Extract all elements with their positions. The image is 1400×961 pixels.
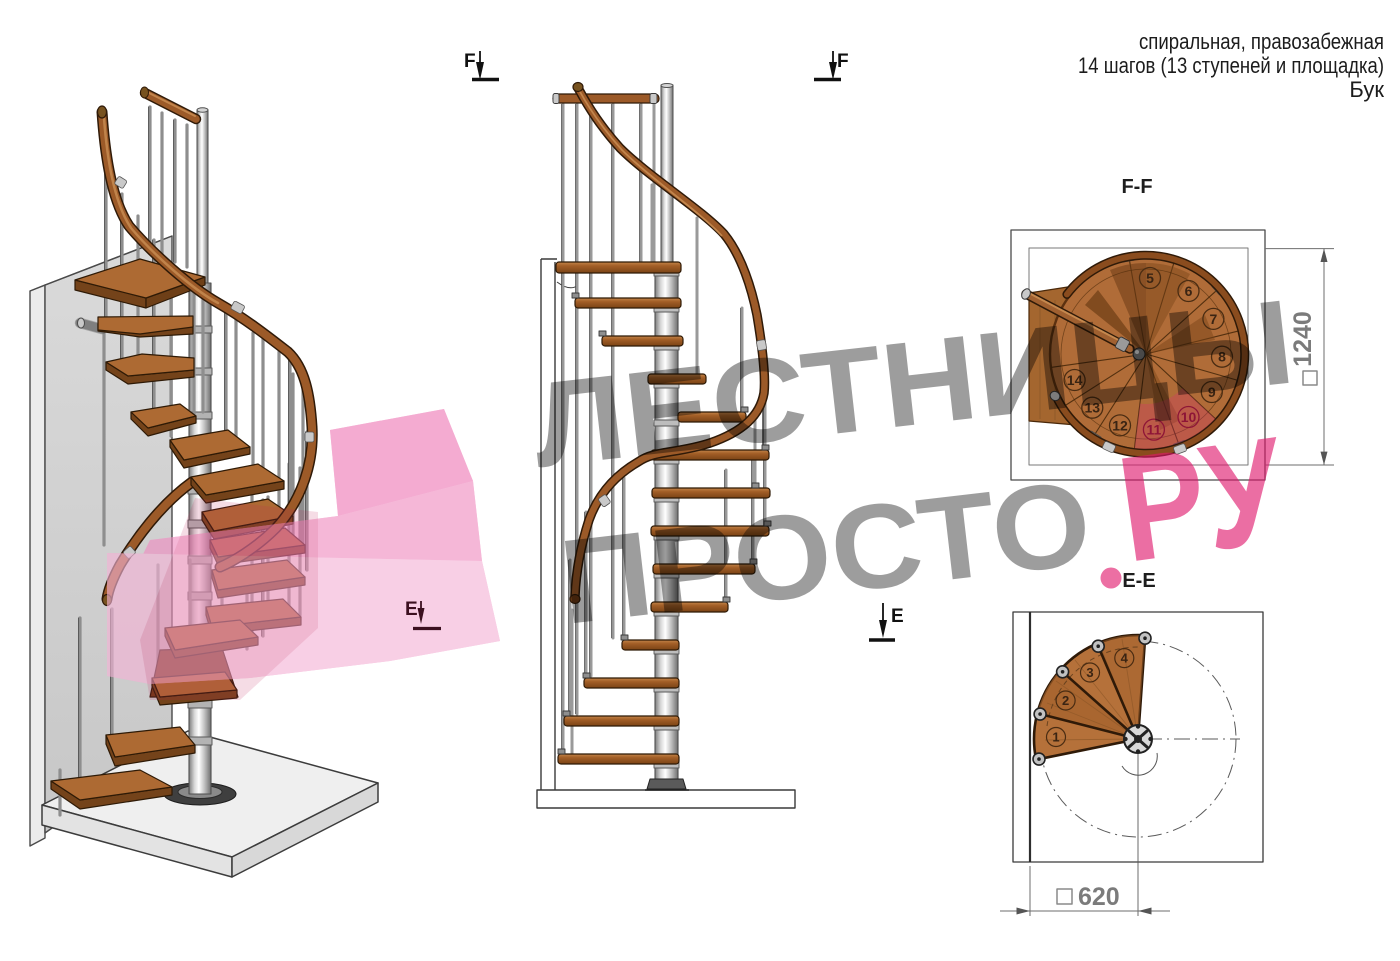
- svg-text:F: F: [837, 51, 849, 72]
- svg-text:1: 1: [1052, 730, 1059, 745]
- svg-text:РУ: РУ: [1109, 404, 1295, 593]
- svg-text:2: 2: [1062, 693, 1069, 708]
- svg-text:5: 5: [1146, 270, 1154, 286]
- svg-text:Бук: Бук: [1349, 77, 1384, 102]
- svg-text:E: E: [405, 599, 418, 620]
- svg-text:3: 3: [1086, 665, 1093, 680]
- svg-text:F: F: [464, 51, 476, 72]
- svg-text:4: 4: [1121, 651, 1129, 666]
- svg-text:F-F: F-F: [1121, 176, 1152, 198]
- svg-text:620: 620: [1078, 883, 1120, 911]
- svg-text:14 шагов (13 ступеней и площад: 14 шагов (13 ступеней и площадка): [1078, 53, 1384, 78]
- svg-text:ПРОСТО: ПРОСТО: [554, 456, 1098, 650]
- svg-text:E: E: [891, 606, 904, 627]
- svg-text:спиральная, правозабежная: спиральная, правозабежная: [1139, 29, 1384, 54]
